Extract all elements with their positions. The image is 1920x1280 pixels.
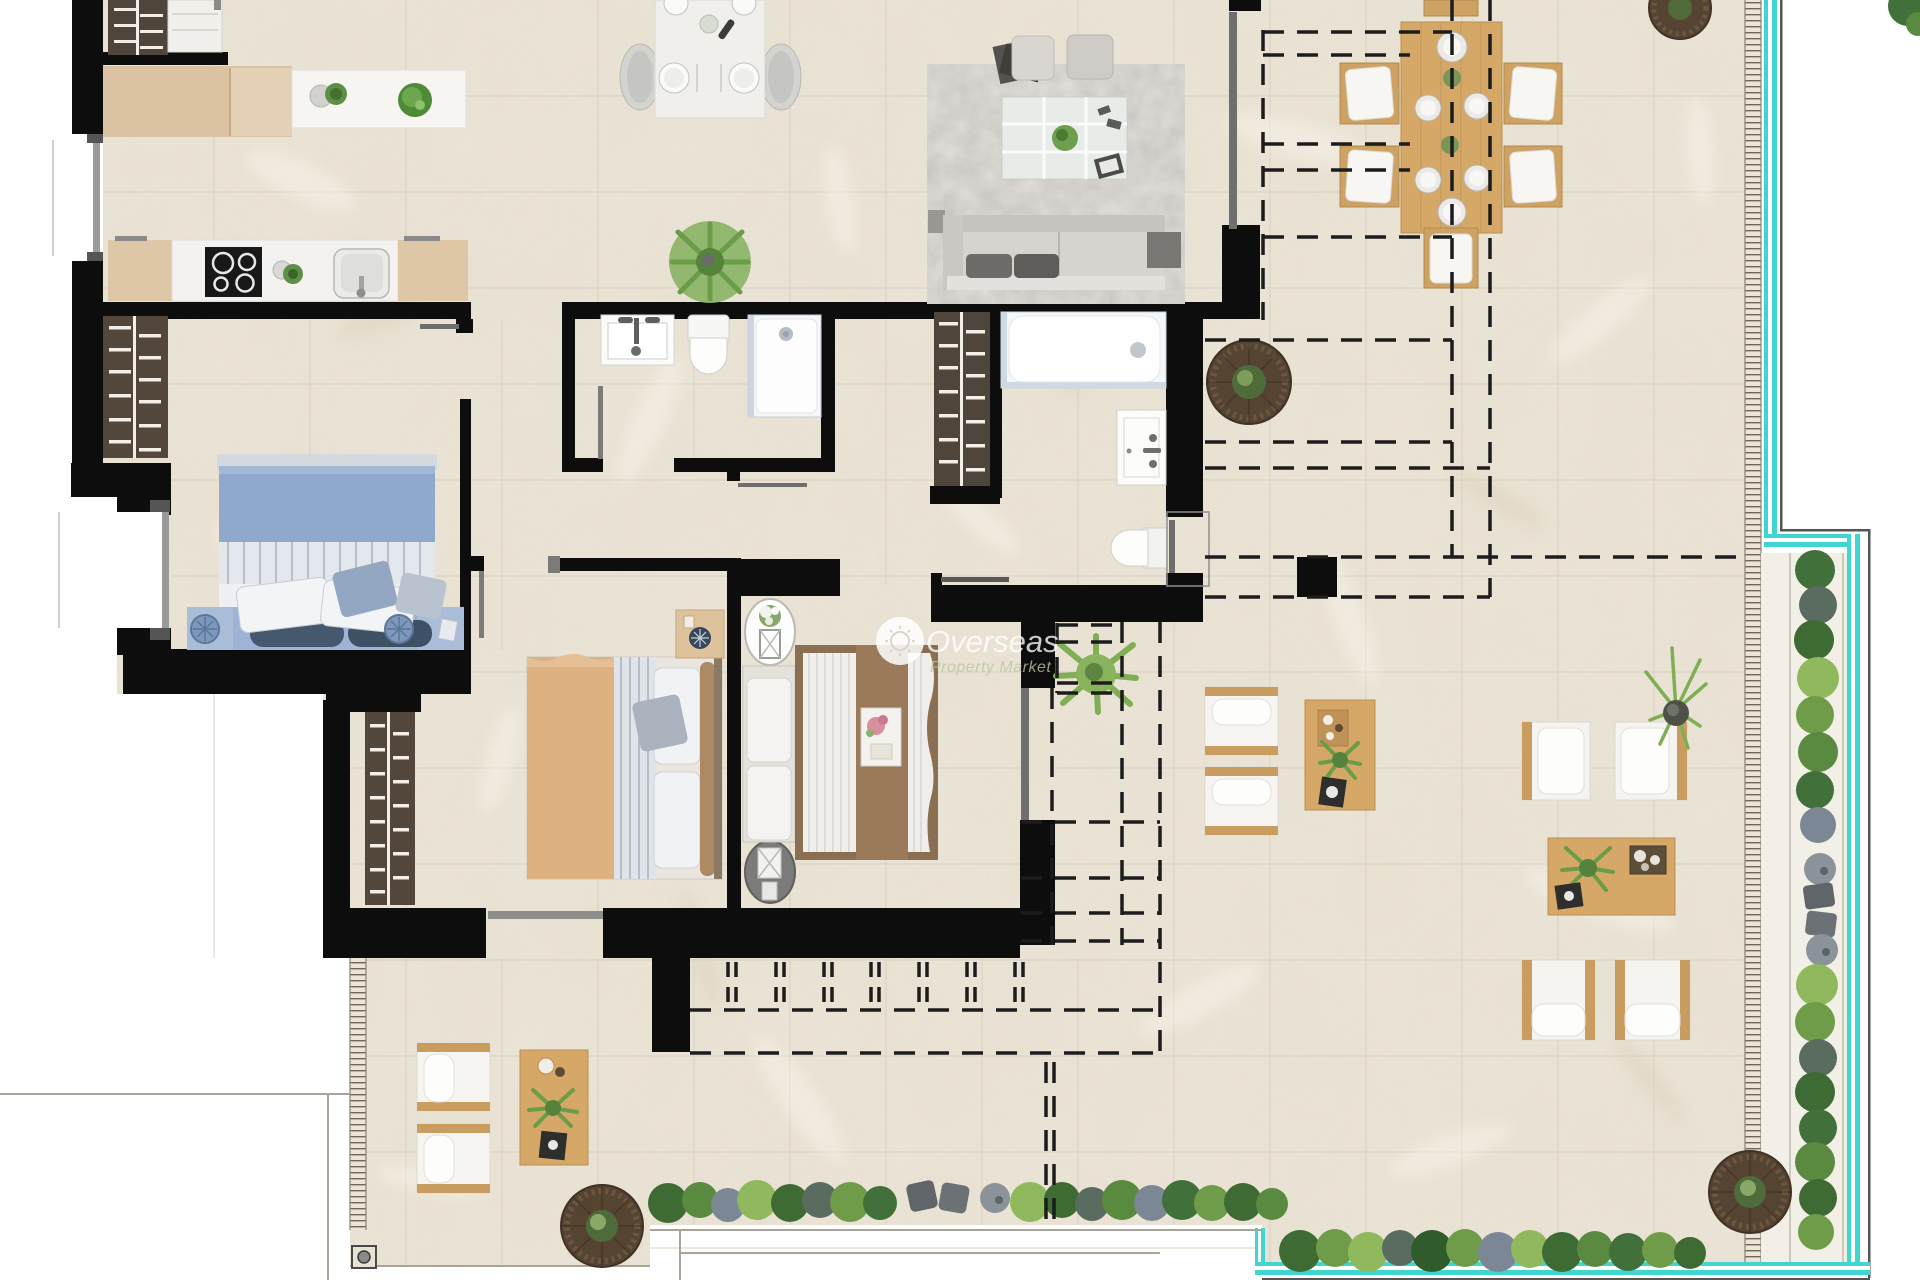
svg-text:Property Market: Property Market — [930, 659, 1051, 676]
svg-text:Overseas: Overseas — [926, 624, 1059, 659]
